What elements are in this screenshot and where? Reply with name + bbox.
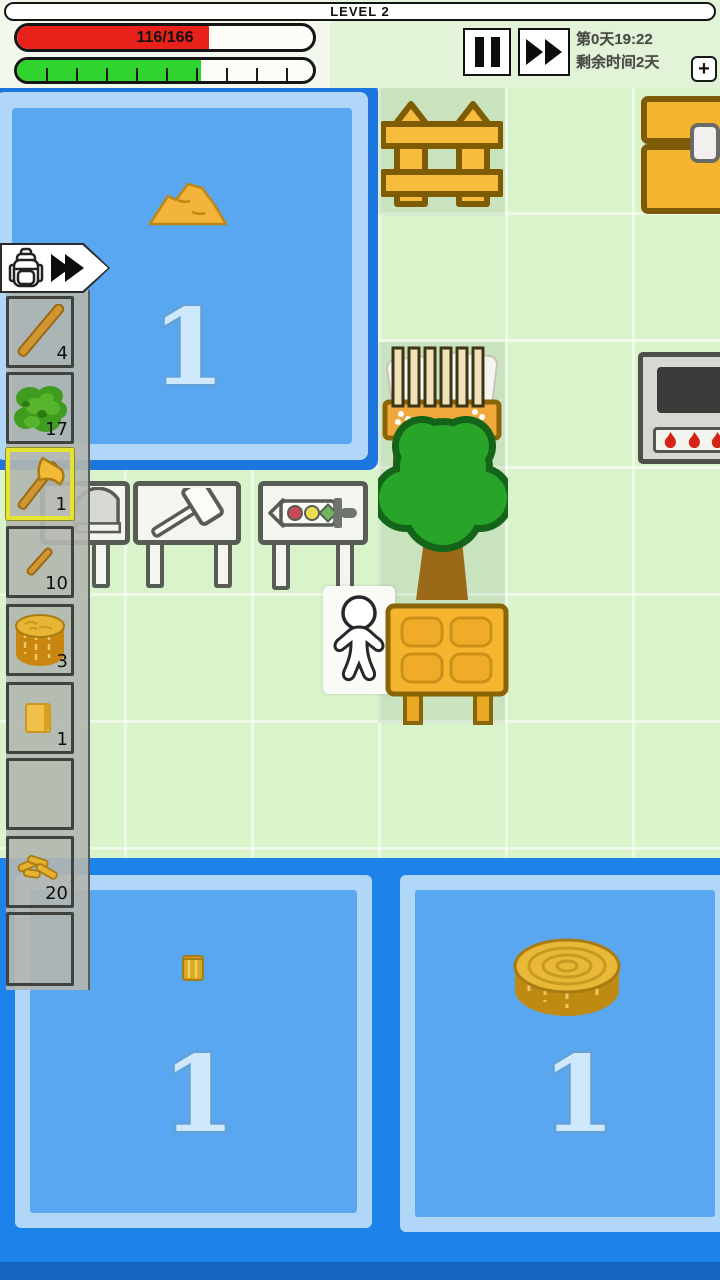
clock-line1: 第0天19:22 (576, 28, 692, 51)
stove-window-icon (657, 367, 720, 413)
slot-count: 4 (57, 343, 68, 364)
stove-burner-panel (653, 427, 720, 453)
hammer-icon (144, 488, 230, 538)
character-icon (326, 592, 392, 688)
inventory-slot-small-stick[interactable]: 10 (6, 526, 74, 598)
flame-icon (664, 431, 677, 449)
chest[interactable] (640, 95, 720, 220)
level-label: LEVEL 2 (330, 4, 390, 19)
top-hud: LEVEL 2 116/166 第0天19:22 剩余时间2天 + (0, 0, 720, 88)
table-leg (92, 540, 110, 588)
inventory-slot-empty[interactable] (6, 758, 74, 830)
clock-line2: 剩余时间2天 (576, 51, 692, 74)
inventory-slot-branches[interactable]: 20 (6, 836, 74, 908)
inventory-toggle[interactable] (0, 243, 110, 293)
inventory-slot-log[interactable]: 3 (6, 604, 74, 676)
play-icon (526, 39, 543, 65)
crafting-table-sword[interactable] (258, 481, 368, 545)
energy-bar-fill (17, 60, 201, 81)
health-bar: 116/166 (14, 23, 316, 52)
fence[interactable] (381, 92, 503, 219)
expand-arrows-icon (51, 254, 84, 282)
slot-count: 10 (45, 573, 68, 594)
slot-count: 17 (45, 419, 68, 440)
small-wood-piece-icon[interactable] (180, 950, 206, 987)
chest-latch-icon (692, 125, 718, 161)
pause-icon (475, 37, 484, 67)
sand-mound-icon[interactable] (148, 182, 228, 231)
add-button[interactable]: + (691, 56, 717, 82)
flame-icon (688, 431, 701, 449)
inventory-slot-stick[interactable]: 4 (6, 296, 74, 368)
cabinet[interactable] (385, 603, 509, 732)
level-banner: LEVEL 2 (4, 2, 716, 21)
table-leg (146, 540, 164, 588)
tree[interactable] (378, 412, 508, 609)
game-screen: 1 (0, 0, 720, 1280)
inventory-slot-axe[interactable]: 1 (6, 448, 74, 520)
gem-sword-icon (267, 493, 359, 533)
table-leg (214, 540, 232, 588)
plank-icon (20, 698, 60, 738)
pause-button[interactable] (463, 28, 511, 76)
energy-bar (14, 57, 316, 84)
pond-count-label: 1 (542, 1042, 615, 1147)
inventory-slot-leaves[interactable]: 17 (6, 372, 74, 444)
wood-log-icon[interactable] (505, 928, 630, 1028)
flame-icon (711, 431, 720, 449)
pause-icon (491, 37, 500, 67)
pond-count-label: 1 (162, 1042, 235, 1147)
stove[interactable] (638, 352, 720, 464)
pond-count-label: 1 (152, 295, 225, 400)
health-value: 116/166 (17, 26, 313, 49)
plus-icon: + (698, 58, 710, 81)
bottom-edge (0, 1262, 720, 1280)
slot-count: 3 (57, 651, 68, 672)
slot-count: 1 (56, 494, 67, 515)
slot-count: 20 (45, 883, 68, 904)
slot-count: 1 (57, 729, 68, 750)
table-leg (336, 540, 354, 590)
inventory-slot-plank[interactable]: 1 (6, 682, 74, 754)
day-clock: 第0天19:22 剩余时间2天 (576, 28, 692, 76)
fast-forward-button[interactable] (518, 28, 570, 76)
backpack-icon (8, 247, 44, 289)
table-leg (272, 540, 290, 590)
play-icon (545, 39, 562, 65)
inventory-slot-empty[interactable] (6, 912, 74, 986)
crafting-table-hammer[interactable] (133, 481, 241, 545)
